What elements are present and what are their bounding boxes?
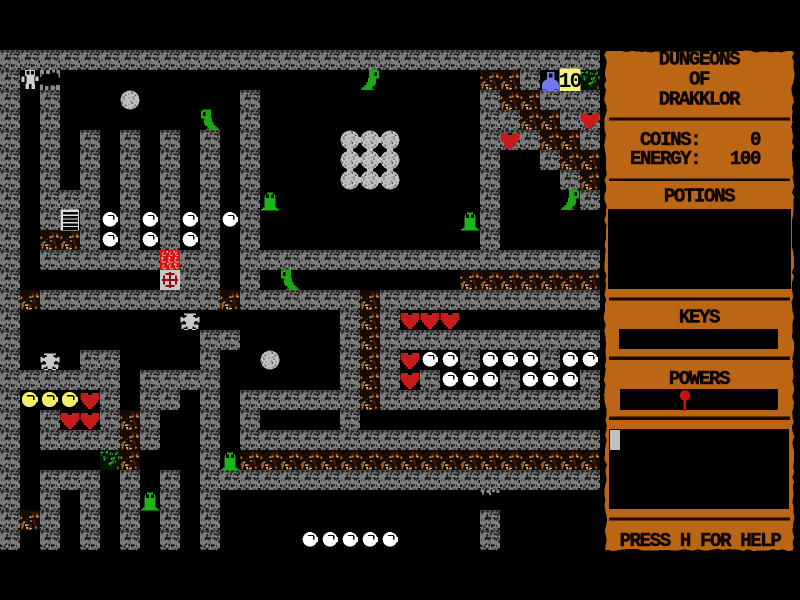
svg-text:PRESS H FOR HELP: PRESS H FOR HELP (620, 530, 782, 552)
svg-text:DRAKKLOR: DRAKKLOR (659, 89, 741, 111)
svg-text:POTIONS: POTIONS (664, 186, 735, 208)
svg-text:ENERGY:: ENERGY: (630, 148, 700, 170)
svg-text:OF: OF (689, 69, 710, 91)
svg-text:100: 100 (730, 148, 761, 170)
svg-text:DUNGEONS: DUNGEONS (659, 49, 740, 71)
svg-text:POWERS: POWERS (669, 368, 730, 390)
svg-text:KEYS: KEYS (679, 307, 720, 329)
